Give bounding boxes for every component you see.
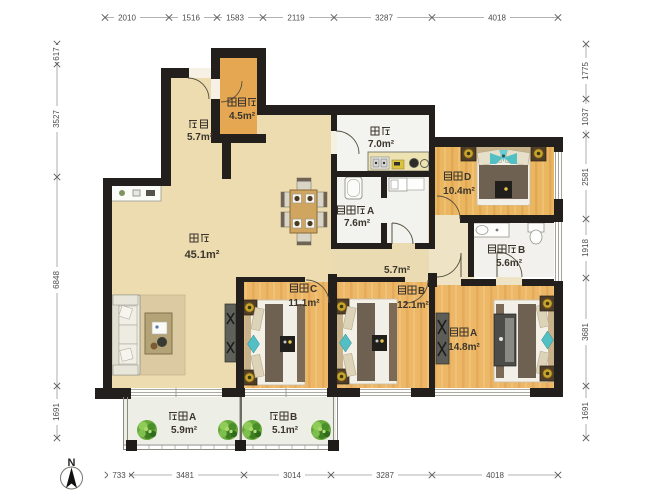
svg-text:1691: 1691: [52, 403, 61, 421]
svg-text:733: 733: [112, 471, 126, 480]
svg-text:6848: 6848: [52, 271, 61, 289]
svg-text:B: B: [518, 245, 525, 256]
svg-text:A: A: [470, 328, 477, 339]
svg-text:617: 617: [52, 47, 61, 61]
svg-text:1037: 1037: [581, 108, 590, 126]
svg-text:10.4m²: 10.4m²: [443, 186, 475, 197]
svg-text:1918: 1918: [581, 239, 590, 257]
svg-text:1583: 1583: [226, 14, 244, 23]
svg-text:2581: 2581: [581, 168, 590, 186]
svg-text:A: A: [189, 412, 196, 423]
svg-text:4.5m²: 4.5m²: [229, 111, 256, 122]
svg-text:1691: 1691: [581, 402, 590, 420]
svg-text:3681: 3681: [581, 323, 590, 341]
svg-text:5.1m²: 5.1m²: [272, 425, 299, 436]
svg-text:C: C: [310, 284, 317, 295]
svg-text:7.6m²: 7.6m²: [344, 218, 371, 229]
svg-text:14.8m²: 14.8m²: [448, 342, 480, 353]
svg-text:2010: 2010: [118, 14, 136, 23]
svg-text:3287: 3287: [375, 14, 393, 23]
svg-text:5.7m²: 5.7m²: [187, 132, 214, 143]
svg-text:5.9m²: 5.9m²: [171, 425, 198, 436]
svg-text:11.1m²: 11.1m²: [288, 298, 320, 309]
svg-text:4018: 4018: [486, 471, 504, 480]
svg-text:B: B: [290, 412, 297, 423]
svg-text:1516: 1516: [182, 14, 200, 23]
svg-text:3014: 3014: [283, 471, 301, 480]
svg-text:45.1m²: 45.1m²: [185, 249, 220, 261]
svg-text:B: B: [418, 286, 425, 297]
svg-text:2119: 2119: [287, 14, 305, 23]
svg-text:3287: 3287: [376, 471, 394, 480]
svg-text:5.7m²: 5.7m²: [384, 265, 411, 276]
svg-text:3481: 3481: [176, 471, 194, 480]
svg-text:7.0m²: 7.0m²: [368, 139, 395, 150]
svg-text:3527: 3527: [52, 110, 61, 128]
svg-text:1775: 1775: [581, 62, 590, 80]
svg-text:4018: 4018: [488, 14, 506, 23]
svg-text:A: A: [367, 206, 374, 217]
svg-text:D: D: [464, 172, 471, 183]
svg-text:12.1m²: 12.1m²: [397, 300, 429, 311]
svg-text:5.6m²: 5.6m²: [496, 258, 523, 269]
